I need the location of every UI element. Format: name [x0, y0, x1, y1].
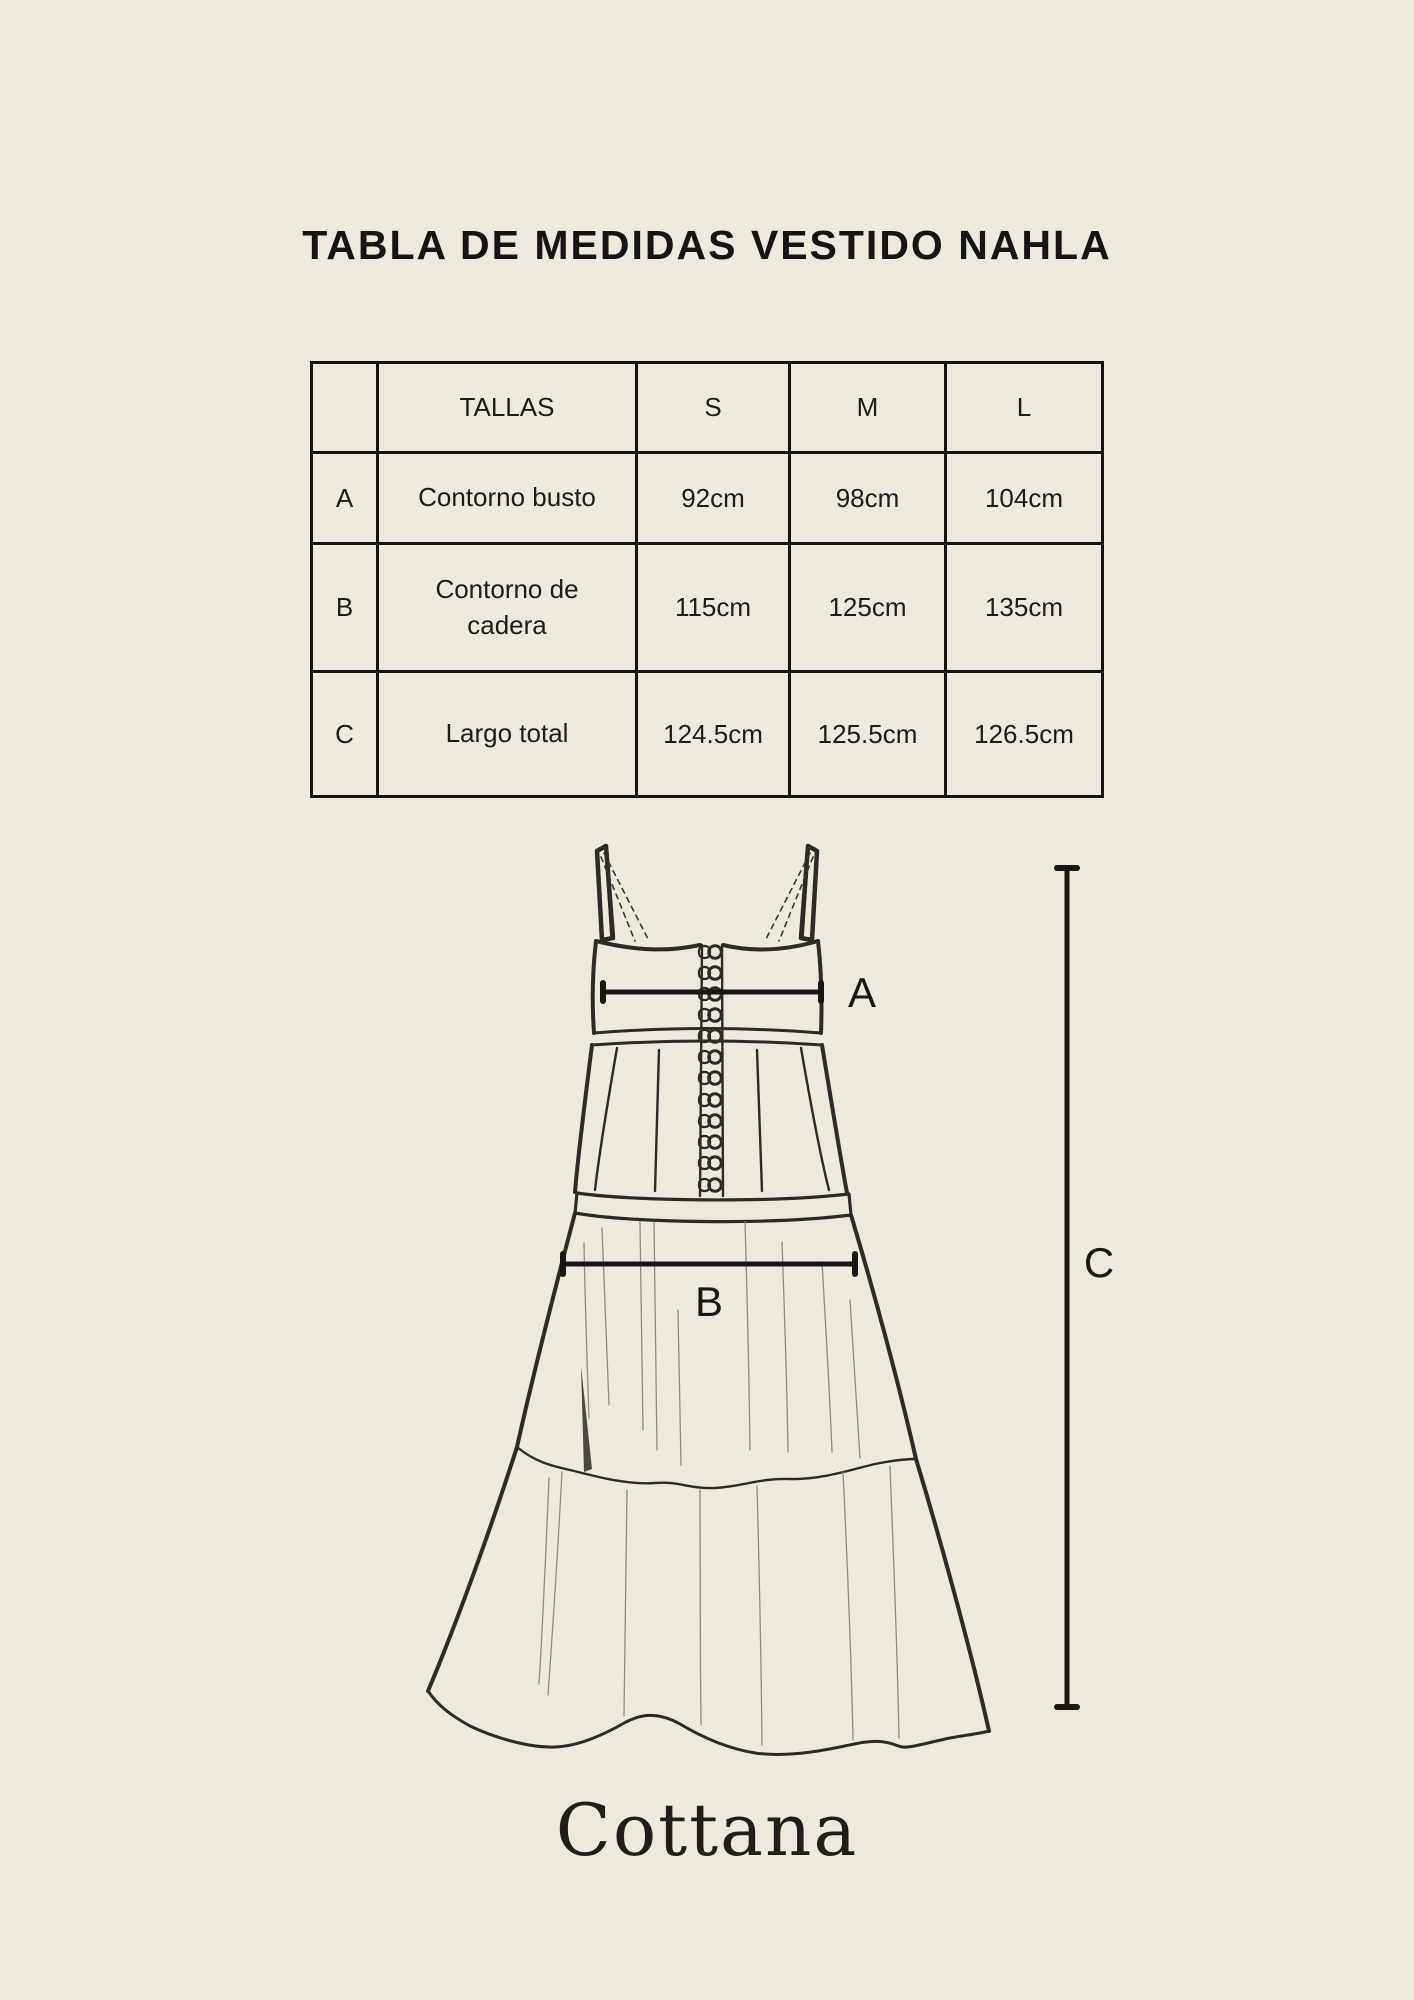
- hip-measure-line: [563, 1254, 855, 1274]
- bust-label: A: [848, 969, 876, 1016]
- skirt-fold-lines-upper: [584, 1222, 860, 1465]
- skirt-fold-lines-lower: [539, 1466, 899, 1745]
- length-measure-line: [1057, 868, 1077, 1707]
- hip-band: [575, 1193, 851, 1222]
- dress-diagram: A B C: [0, 0, 1414, 2000]
- brand-logo: Cottana: [0, 1788, 1414, 1872]
- measurement-annotations: [563, 868, 1077, 1707]
- hip-label: B: [695, 1278, 723, 1325]
- length-label: C: [1084, 1239, 1114, 1286]
- strap-dashed-lines: [601, 853, 813, 941]
- dress-straps: [597, 846, 817, 940]
- fold-shadow-wedge: [581, 1366, 592, 1472]
